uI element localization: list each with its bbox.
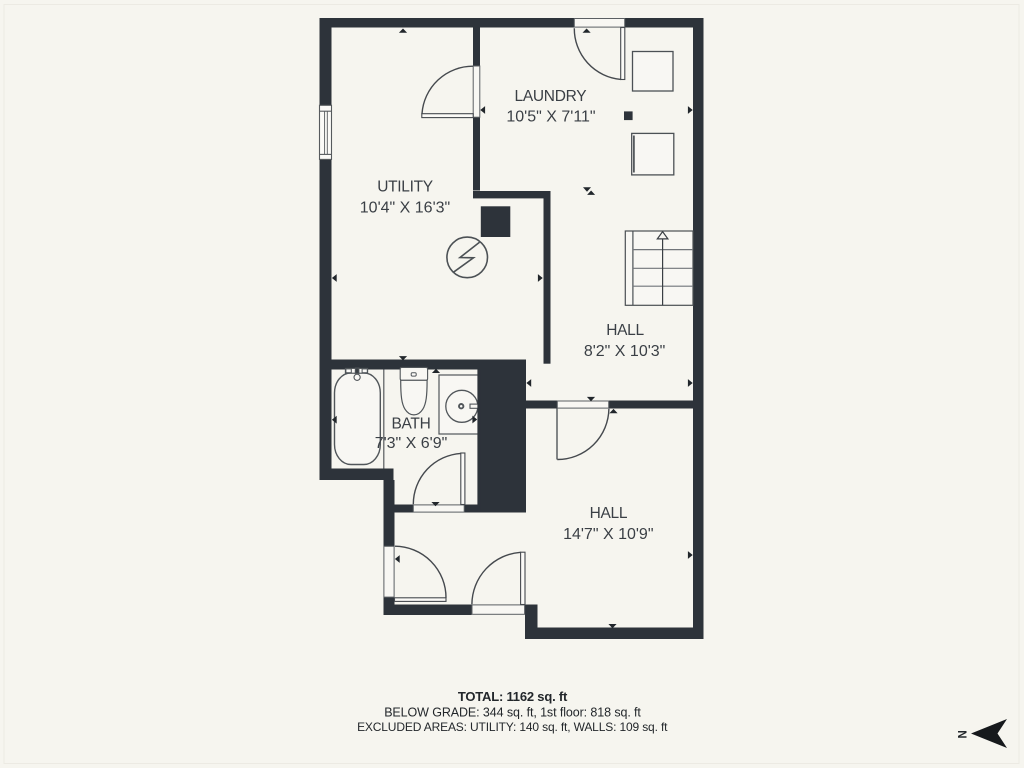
svg-text:HALL: HALL bbox=[606, 322, 644, 339]
svg-text:HALL: HALL bbox=[590, 505, 628, 522]
svg-text:14'7" X 10'9": 14'7" X 10'9" bbox=[563, 526, 653, 543]
svg-text:TOTAL: 1162 sq. ft: TOTAL: 1162 sq. ft bbox=[458, 689, 568, 704]
svg-text:EXCLUDED AREAS: UTILITY: 140 s: EXCLUDED AREAS: UTILITY: 140 sq. ft, WAL… bbox=[357, 720, 668, 734]
svg-text:UTILITY: UTILITY bbox=[377, 179, 433, 196]
svg-text:BATH: BATH bbox=[392, 416, 431, 433]
svg-text:10'4" X 16'3": 10'4" X 16'3" bbox=[360, 200, 450, 217]
svg-text:N: N bbox=[958, 730, 970, 738]
svg-text:7'3" X 6'9": 7'3" X 6'9" bbox=[375, 435, 448, 452]
svg-text:BELOW GRADE: 344 sq. ft, 1st f: BELOW GRADE: 344 sq. ft, 1st floor: 818 … bbox=[384, 706, 641, 720]
svg-text:LAUNDRY: LAUNDRY bbox=[515, 88, 587, 105]
svg-text:10'5" X 7'11": 10'5" X 7'11" bbox=[506, 109, 595, 126]
svg-text:8'2" X 10'3": 8'2" X 10'3" bbox=[584, 343, 666, 360]
